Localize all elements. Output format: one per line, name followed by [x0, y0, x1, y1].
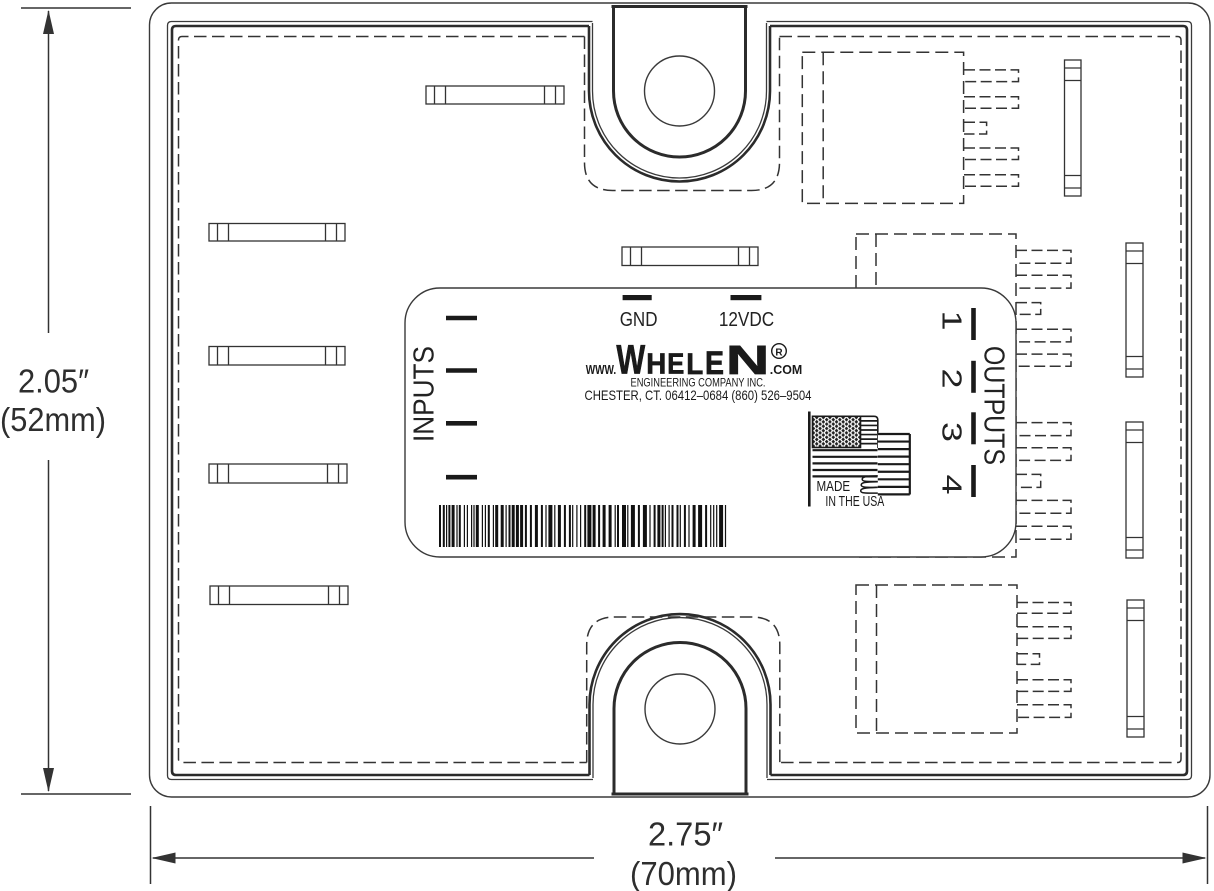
svg-text:4: 4	[937, 475, 968, 495]
svg-text:3: 3	[937, 422, 968, 442]
svg-text:(52mm): (52mm)	[0, 401, 106, 438]
svg-text:WWW.: WWW.	[586, 362, 617, 377]
svg-text:GND: GND	[620, 308, 658, 331]
svg-text:IN THE USA: IN THE USA	[825, 494, 884, 510]
svg-text:2.75″: 2.75″	[648, 816, 723, 853]
svg-text:2: 2	[937, 369, 968, 389]
svg-text:(70mm): (70mm)	[630, 855, 737, 891]
svg-text:2.05″: 2.05″	[18, 363, 89, 400]
svg-text:.COM: .COM	[770, 362, 803, 377]
svg-text:1: 1	[937, 311, 968, 331]
svg-text:CHESTER, CT. 06412–0684 (860): CHESTER, CT. 06412–0684 (860) 526–9504	[585, 387, 812, 403]
svg-text:12VDC: 12VDC	[719, 308, 774, 331]
svg-text:INPUTS: INPUTS	[409, 346, 441, 442]
svg-text:R: R	[775, 347, 783, 358]
svg-text:OUTPUTS: OUTPUTS	[978, 346, 1010, 465]
svg-text:MADE: MADE	[817, 479, 851, 495]
